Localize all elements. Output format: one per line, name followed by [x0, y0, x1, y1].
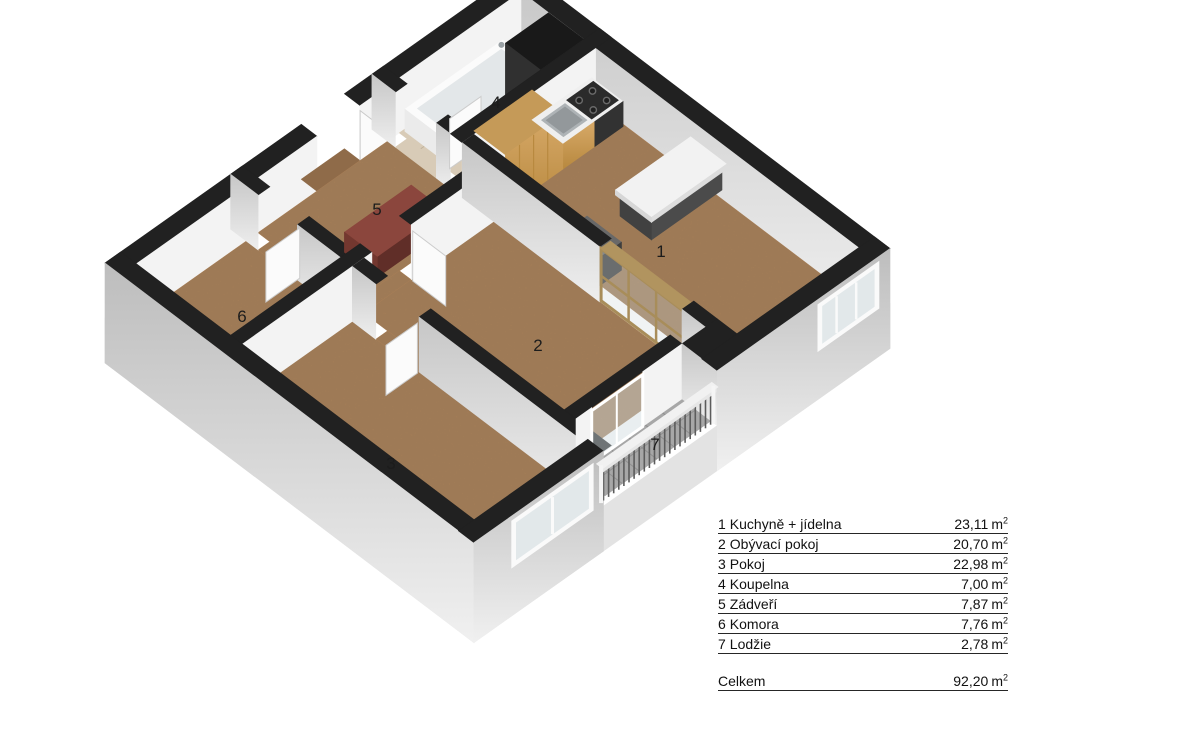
legend-room-area: 2,78m2 [961, 637, 1008, 652]
legend-room-label: Zádveří [730, 596, 777, 612]
legend-room-area: 22,98m2 [953, 557, 1008, 572]
legend-room-name: 5Zádveří [718, 597, 777, 612]
legend-total-value: 92,20m2 [953, 674, 1008, 689]
legend-room-area: 7,87m2 [961, 597, 1008, 612]
room-number-label-1: 1 [656, 242, 665, 261]
room-number-label-6: 6 [237, 307, 246, 326]
legend-room-label: Komora [730, 616, 779, 632]
legend-room-label: Pokoj [730, 556, 765, 572]
legend-room-area: 20,70m2 [953, 537, 1008, 552]
legend-room-number: 3 [718, 556, 726, 572]
cooktop-burner [589, 88, 595, 94]
legend-room-name: 7Lodžie [718, 637, 771, 652]
legend-room-label: Obývací pokoj [730, 536, 819, 552]
legend-room-name: 3Pokoj [718, 557, 765, 572]
room-number-label-4: 4 [491, 93, 500, 112]
floorplan-svg: 1234567 [0, 0, 1200, 747]
legend-row-3: 3Pokoj22,98m2 [718, 554, 1008, 574]
legend-row-2: 2Obývací pokoj20,70m2 [718, 534, 1008, 554]
legend-room-number: 2 [718, 536, 726, 552]
room-number-label-3: 3 [386, 454, 395, 473]
interior-wall-face [436, 123, 450, 189]
cooktop-burner [603, 97, 609, 103]
legend-row-5: 5Zádveří7,87m2 [718, 594, 1008, 614]
legend-total-row: Celkem 92,20m2 [718, 671, 1008, 691]
legend-room-number: 1 [718, 516, 726, 532]
bathtub-faucet [498, 42, 504, 48]
legend-room-area: 23,11m2 [954, 517, 1008, 532]
legend-room-name: 4Koupelna [718, 577, 789, 592]
area-legend: 1Kuchyně + jídelna23,11m22Obývací pokoj2… [718, 514, 1008, 691]
legend-room-name: 1Kuchyně + jídelna [718, 517, 842, 532]
legend-room-number: 5 [718, 596, 726, 612]
legend-room-number: 6 [718, 616, 726, 632]
legend-room-number: 7 [718, 636, 726, 652]
legend-room-area: 7,76m2 [961, 617, 1008, 632]
cooktop-burner [576, 97, 582, 103]
legend-room-number: 4 [718, 576, 726, 592]
legend-row-4: 4Koupelna7,00m2 [718, 574, 1008, 594]
legend-room-name: 2Obývací pokoj [718, 537, 819, 552]
legend-room-label: Lodžie [730, 636, 771, 652]
cooktop-burner [590, 107, 596, 113]
legend-room-label: Kuchyně + jídelna [730, 516, 842, 532]
legend-row-6: 6Komora7,76m2 [718, 614, 1008, 634]
legend-row-1: 1Kuchyně + jídelna23,11m2 [718, 514, 1008, 534]
legend-room-label: Koupelna [730, 576, 789, 592]
room-number-label-7: 7 [650, 435, 659, 454]
legend-row-7: 7Lodžie2,78m2 [718, 634, 1008, 654]
floorplan-image: 1234567 1Kuchyně + jídelna23,11m22Obývac… [0, 0, 1200, 747]
legend-room-name: 6Komora [718, 617, 779, 632]
legend-total-label: Celkem [718, 674, 765, 689]
room-number-label-2: 2 [533, 336, 542, 355]
legend-room-area: 7,00m2 [961, 577, 1008, 592]
room-number-label-5: 5 [372, 200, 381, 219]
